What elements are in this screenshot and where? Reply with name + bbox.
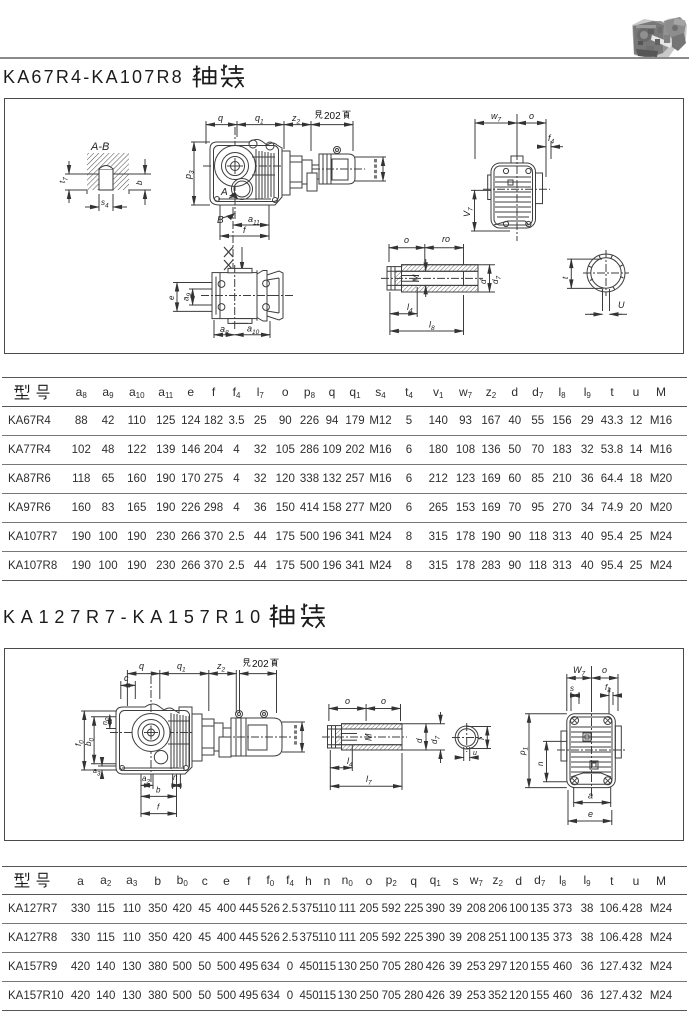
svg-text:a: a <box>588 791 593 801</box>
svg-text:l8: l8 <box>429 320 435 333</box>
svg-text:d7: d7 <box>491 276 503 284</box>
svg-text:q: q <box>139 661 144 671</box>
svg-text:o: o <box>381 696 386 706</box>
svg-text:W7: W7 <box>573 665 586 678</box>
svg-text:f: f <box>243 225 247 235</box>
svg-text:f: f <box>157 803 160 812</box>
svg-text:d: d <box>479 279 488 284</box>
svg-text:t: t <box>561 276 570 279</box>
svg-text:b: b <box>156 786 161 795</box>
svg-text:d: d <box>415 738 424 743</box>
svg-text:a2: a2 <box>142 774 150 786</box>
svg-text:e: e <box>167 295 176 300</box>
svg-text:f4: f4 <box>605 683 611 695</box>
svg-text:b: b <box>135 180 144 185</box>
svg-text:t7: t7 <box>58 177 70 183</box>
svg-text:U: U <box>618 300 625 310</box>
svg-text:a9: a9 <box>182 293 194 301</box>
svg-text:s: s <box>570 684 574 693</box>
svg-text:o: o <box>602 665 607 675</box>
svg-text:z2: z2 <box>216 661 226 674</box>
svg-text:A-B: A-B <box>90 141 109 153</box>
svg-text:a3: a3 <box>93 768 101 778</box>
svg-text:e: e <box>588 809 593 819</box>
svg-text:q: q <box>218 113 223 123</box>
svg-text:s4: s4 <box>101 198 109 210</box>
svg-text:202: 202 <box>252 659 269 670</box>
svg-text:a10: a10 <box>247 324 260 337</box>
svg-text:ro: ro <box>442 234 450 244</box>
svg-text:l4: l4 <box>407 302 413 315</box>
svg-text:M: M <box>411 274 421 282</box>
svg-text:p1: p1 <box>518 747 530 756</box>
svg-text:z2: z2 <box>291 113 301 126</box>
svg-text:n: n <box>536 761 545 766</box>
svg-text:M: M <box>364 733 374 741</box>
svg-text:q1: q1 <box>177 661 186 674</box>
svg-text:o: o <box>529 111 534 121</box>
svg-text:o: o <box>345 696 350 706</box>
svg-text:c: c <box>124 673 129 683</box>
svg-text:u: u <box>473 750 477 757</box>
svg-text:w7: w7 <box>491 111 502 124</box>
svg-text:q1: q1 <box>255 113 264 126</box>
svg-text:A: A <box>220 187 228 198</box>
svg-text:n: n <box>173 773 178 782</box>
svg-text:o: o <box>404 235 409 245</box>
svg-text:202: 202 <box>324 111 341 122</box>
svg-text:d7: d7 <box>430 736 442 744</box>
svg-text:V7: V7 <box>462 207 475 217</box>
svg-text:l7: l7 <box>366 774 372 787</box>
